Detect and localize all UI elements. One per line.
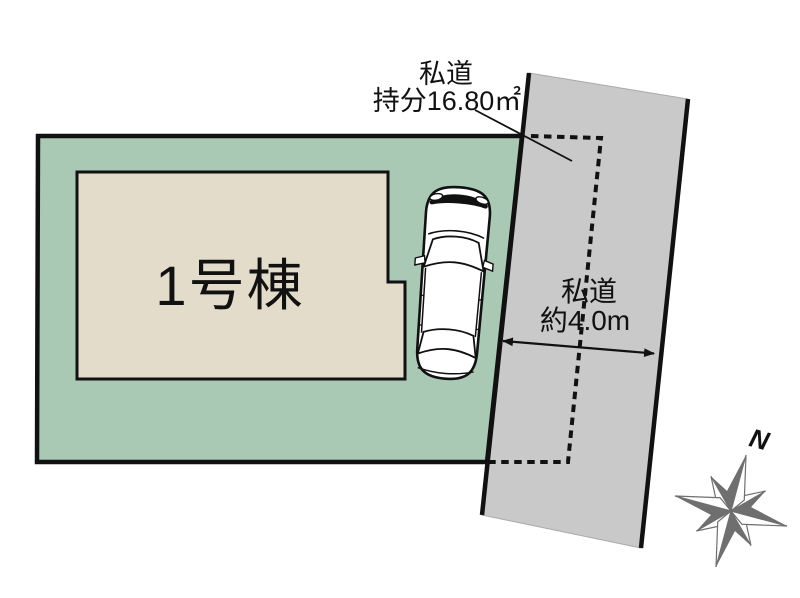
road-label-line1: 私道 xyxy=(561,276,617,307)
site-plan-drawing: 1号棟 私道 持分16.80㎡ 私道 約4.0m xyxy=(0,0,800,598)
road-share-label-line1: 私道 xyxy=(419,59,473,89)
road-share-label-line2: 持分16.80㎡ xyxy=(373,86,522,116)
compass xyxy=(660,440,800,582)
compass-north-label: N xyxy=(746,422,773,456)
building-1-label: 1号棟 xyxy=(155,254,304,317)
road-label-line2: 約4.0m xyxy=(540,305,630,336)
compass-cardinal-points xyxy=(660,440,800,582)
site-plan-canvas: 1号棟 私道 持分16.80㎡ 私道 約4.0m xyxy=(0,0,800,598)
